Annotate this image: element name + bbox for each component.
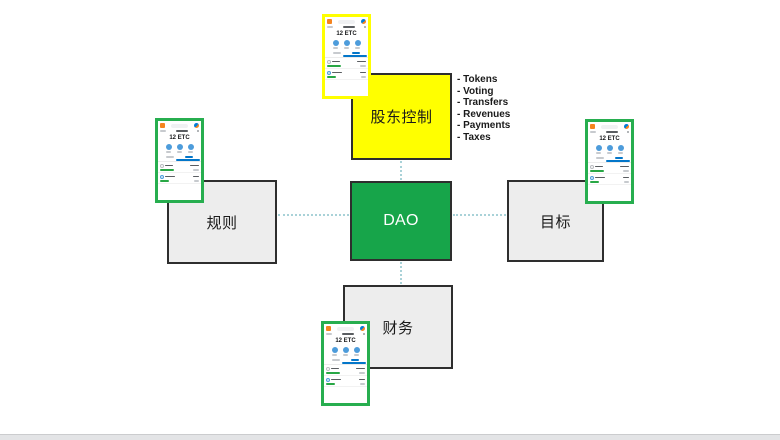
- buy-icon: [596, 145, 602, 151]
- buy-label-line: [332, 354, 337, 356]
- tx-title-line: [332, 72, 342, 74]
- tx-sub-line: [194, 180, 199, 182]
- tx-hash-line: [590, 181, 599, 183]
- network-selector-pill: [337, 327, 354, 331]
- tab-left-label-line: [166, 156, 174, 158]
- metamask-fox-icon: [327, 19, 332, 24]
- buy-action: [166, 144, 172, 153]
- transaction-row: [325, 69, 368, 80]
- send-label-line: [344, 47, 349, 49]
- tab-right-label-line: [352, 52, 360, 54]
- tx-hash-line: [326, 383, 335, 385]
- feature-item: - Revenues: [457, 109, 510, 121]
- send-label-line: [607, 152, 612, 154]
- wallet-balance: 12 ETC: [588, 135, 631, 143]
- send-icon: [344, 40, 350, 46]
- swap-action: [354, 347, 360, 356]
- buy-action: [333, 40, 339, 49]
- account-row: [325, 25, 368, 28]
- wallet-balance: 12 ETC: [158, 134, 201, 142]
- connector-left: [278, 214, 349, 216]
- feature-item: - Taxes: [457, 132, 510, 144]
- transaction-row: [588, 174, 631, 185]
- swap-icon: [354, 347, 360, 353]
- horizontal-scrollbar[interactable]: [0, 434, 780, 440]
- tx-amount-line: [190, 165, 199, 167]
- wallet-action-buttons: [325, 40, 368, 49]
- tab-left-label-line: [596, 157, 604, 159]
- options-menu-icon: [363, 333, 365, 335]
- tx-hash-line: [326, 372, 340, 374]
- tx-hash-line: [160, 180, 169, 182]
- wallet-tabs: [324, 359, 367, 361]
- tx-amount-line: [359, 379, 365, 381]
- transaction-row: [325, 58, 368, 69]
- buy-icon: [332, 347, 338, 353]
- wallet-balance: 12 ETC: [325, 30, 368, 38]
- swap-icon: [618, 145, 624, 151]
- account-name-text-line: [342, 333, 354, 335]
- wallet-screenshot-bottom: 12 ETC: [321, 321, 370, 406]
- wallet-screenshot-left: 12 ETC: [155, 118, 204, 203]
- account-left-text-line: [326, 333, 332, 335]
- connector-bottom: [400, 262, 402, 284]
- tx-title-line: [331, 368, 339, 370]
- tx-hash-line: [160, 169, 174, 171]
- wallet-topbar: [325, 17, 368, 25]
- account-row: [588, 130, 631, 133]
- tx-sub-line: [623, 170, 629, 172]
- swap-label-line: [354, 354, 359, 356]
- node-rules-label: 规则: [206, 212, 237, 233]
- tx-amount-line: [193, 176, 199, 178]
- account-left-text-line: [590, 131, 596, 133]
- wallet-action-buttons: [158, 144, 201, 153]
- wallet-screenshot-top: 12 ETC: [322, 14, 371, 99]
- tx-status-icon: [326, 367, 330, 371]
- account-row: [324, 332, 367, 335]
- wallet-topbar: [158, 121, 201, 129]
- connector-top: [400, 161, 402, 180]
- buy-label-line: [166, 151, 171, 153]
- tab-left-label-line: [333, 52, 341, 54]
- tx-title-line: [331, 379, 341, 381]
- swap-label-line: [355, 47, 360, 49]
- options-menu-icon: [627, 131, 629, 133]
- send-label-line: [343, 354, 348, 356]
- buy-label-line: [596, 152, 601, 154]
- tx-sub-line: [360, 383, 365, 385]
- swap-icon: [355, 40, 361, 46]
- tx-sub-line: [359, 372, 365, 374]
- buy-icon: [166, 144, 172, 150]
- feature-item: - Tokens: [457, 74, 510, 86]
- tx-hash-line: [590, 170, 604, 172]
- wallet-tabs: [158, 156, 201, 158]
- tab-right-label-line: [185, 156, 193, 158]
- node-dao-label: DAO: [383, 212, 419, 230]
- account-avatar: [360, 326, 365, 331]
- metamask-fox-icon: [160, 123, 165, 128]
- network-selector-pill: [171, 124, 188, 128]
- send-label-line: [177, 151, 182, 153]
- tx-amount-line: [623, 177, 629, 179]
- account-left-text-line: [327, 26, 333, 28]
- swap-label-line: [618, 152, 623, 154]
- tx-status-icon: [590, 165, 594, 169]
- tx-status-icon: [327, 60, 331, 64]
- tx-amount-line: [356, 368, 365, 370]
- feature-item: - Transfers: [457, 97, 510, 109]
- swap-label-line: [188, 151, 193, 153]
- send-icon: [343, 347, 349, 353]
- account-name-text-line: [343, 26, 355, 28]
- account-name-text-line: [176, 130, 188, 132]
- send-action: [607, 145, 613, 154]
- connector-right: [453, 214, 506, 216]
- tx-amount-line: [620, 166, 629, 168]
- wallet-tabs: [325, 52, 368, 54]
- tx-title-line: [595, 177, 605, 179]
- tx-title-line: [165, 165, 173, 167]
- dao-feature-list: - Tokens - Voting - Transfers - Revenues…: [457, 74, 510, 144]
- node-shareholder-control-label: 股东控制: [370, 106, 432, 127]
- transaction-row: [588, 163, 631, 174]
- tx-sub-line: [624, 181, 629, 183]
- account-row: [158, 129, 201, 132]
- transaction-row: [324, 376, 367, 387]
- swap-icon: [188, 144, 194, 150]
- wallet-topbar: [324, 324, 367, 332]
- account-avatar: [361, 19, 366, 24]
- send-action: [344, 40, 350, 49]
- tx-token-icon: [326, 378, 330, 382]
- network-selector-pill: [338, 20, 355, 24]
- wallet-balance: 12 ETC: [324, 337, 367, 345]
- tx-sub-line: [360, 65, 366, 67]
- buy-label-line: [333, 47, 338, 49]
- tx-title-line: [332, 61, 340, 63]
- wallet-topbar: [588, 122, 631, 130]
- tx-status-icon: [160, 164, 164, 168]
- node-finance-label: 财务: [382, 317, 413, 338]
- buy-action: [596, 145, 602, 154]
- swap-action: [355, 40, 361, 49]
- swap-action: [618, 145, 624, 154]
- node-goals-label: 目标: [540, 211, 571, 232]
- node-dao: DAO: [350, 181, 452, 261]
- wallet-tabs: [588, 157, 631, 159]
- tx-amount-line: [360, 72, 366, 74]
- tx-hash-line: [327, 65, 341, 67]
- options-menu-icon: [197, 130, 199, 132]
- tx-amount-line: [357, 61, 366, 63]
- send-icon: [607, 145, 613, 151]
- send-action: [343, 347, 349, 356]
- metamask-fox-icon: [590, 124, 595, 129]
- metamask-fox-icon: [326, 326, 331, 331]
- tab-left-label-line: [332, 359, 340, 361]
- tx-hash-line: [327, 76, 336, 78]
- options-menu-icon: [364, 26, 366, 28]
- buy-icon: [333, 40, 339, 46]
- feature-item: - Payments: [457, 120, 510, 132]
- feature-item: - Voting: [457, 86, 510, 98]
- buy-action: [332, 347, 338, 356]
- wallet-action-buttons: [324, 347, 367, 356]
- tx-token-icon: [327, 71, 331, 75]
- diagram-canvas: 股东控制 DAO 规则 目标 财务 - Tokens - Voting - Tr…: [0, 0, 780, 440]
- tx-sub-line: [193, 169, 199, 171]
- tab-right-label-line: [615, 157, 623, 159]
- account-left-text-line: [160, 130, 166, 132]
- tab-right-label-line: [351, 359, 359, 361]
- transaction-row: [324, 365, 367, 376]
- tx-sub-line: [361, 76, 366, 78]
- wallet-action-buttons: [588, 145, 631, 154]
- tx-title-line: [595, 166, 603, 168]
- network-selector-pill: [601, 125, 618, 129]
- tx-title-line: [165, 176, 175, 178]
- account-name-text-line: [606, 131, 618, 133]
- tx-token-icon: [160, 175, 164, 179]
- account-avatar: [624, 124, 629, 129]
- transaction-row: [158, 173, 201, 184]
- tx-token-icon: [590, 176, 594, 180]
- wallet-screenshot-right: 12 ETC: [585, 119, 634, 204]
- transaction-row: [158, 162, 201, 173]
- swap-action: [188, 144, 194, 153]
- send-icon: [177, 144, 183, 150]
- send-action: [177, 144, 183, 153]
- account-avatar: [194, 123, 199, 128]
